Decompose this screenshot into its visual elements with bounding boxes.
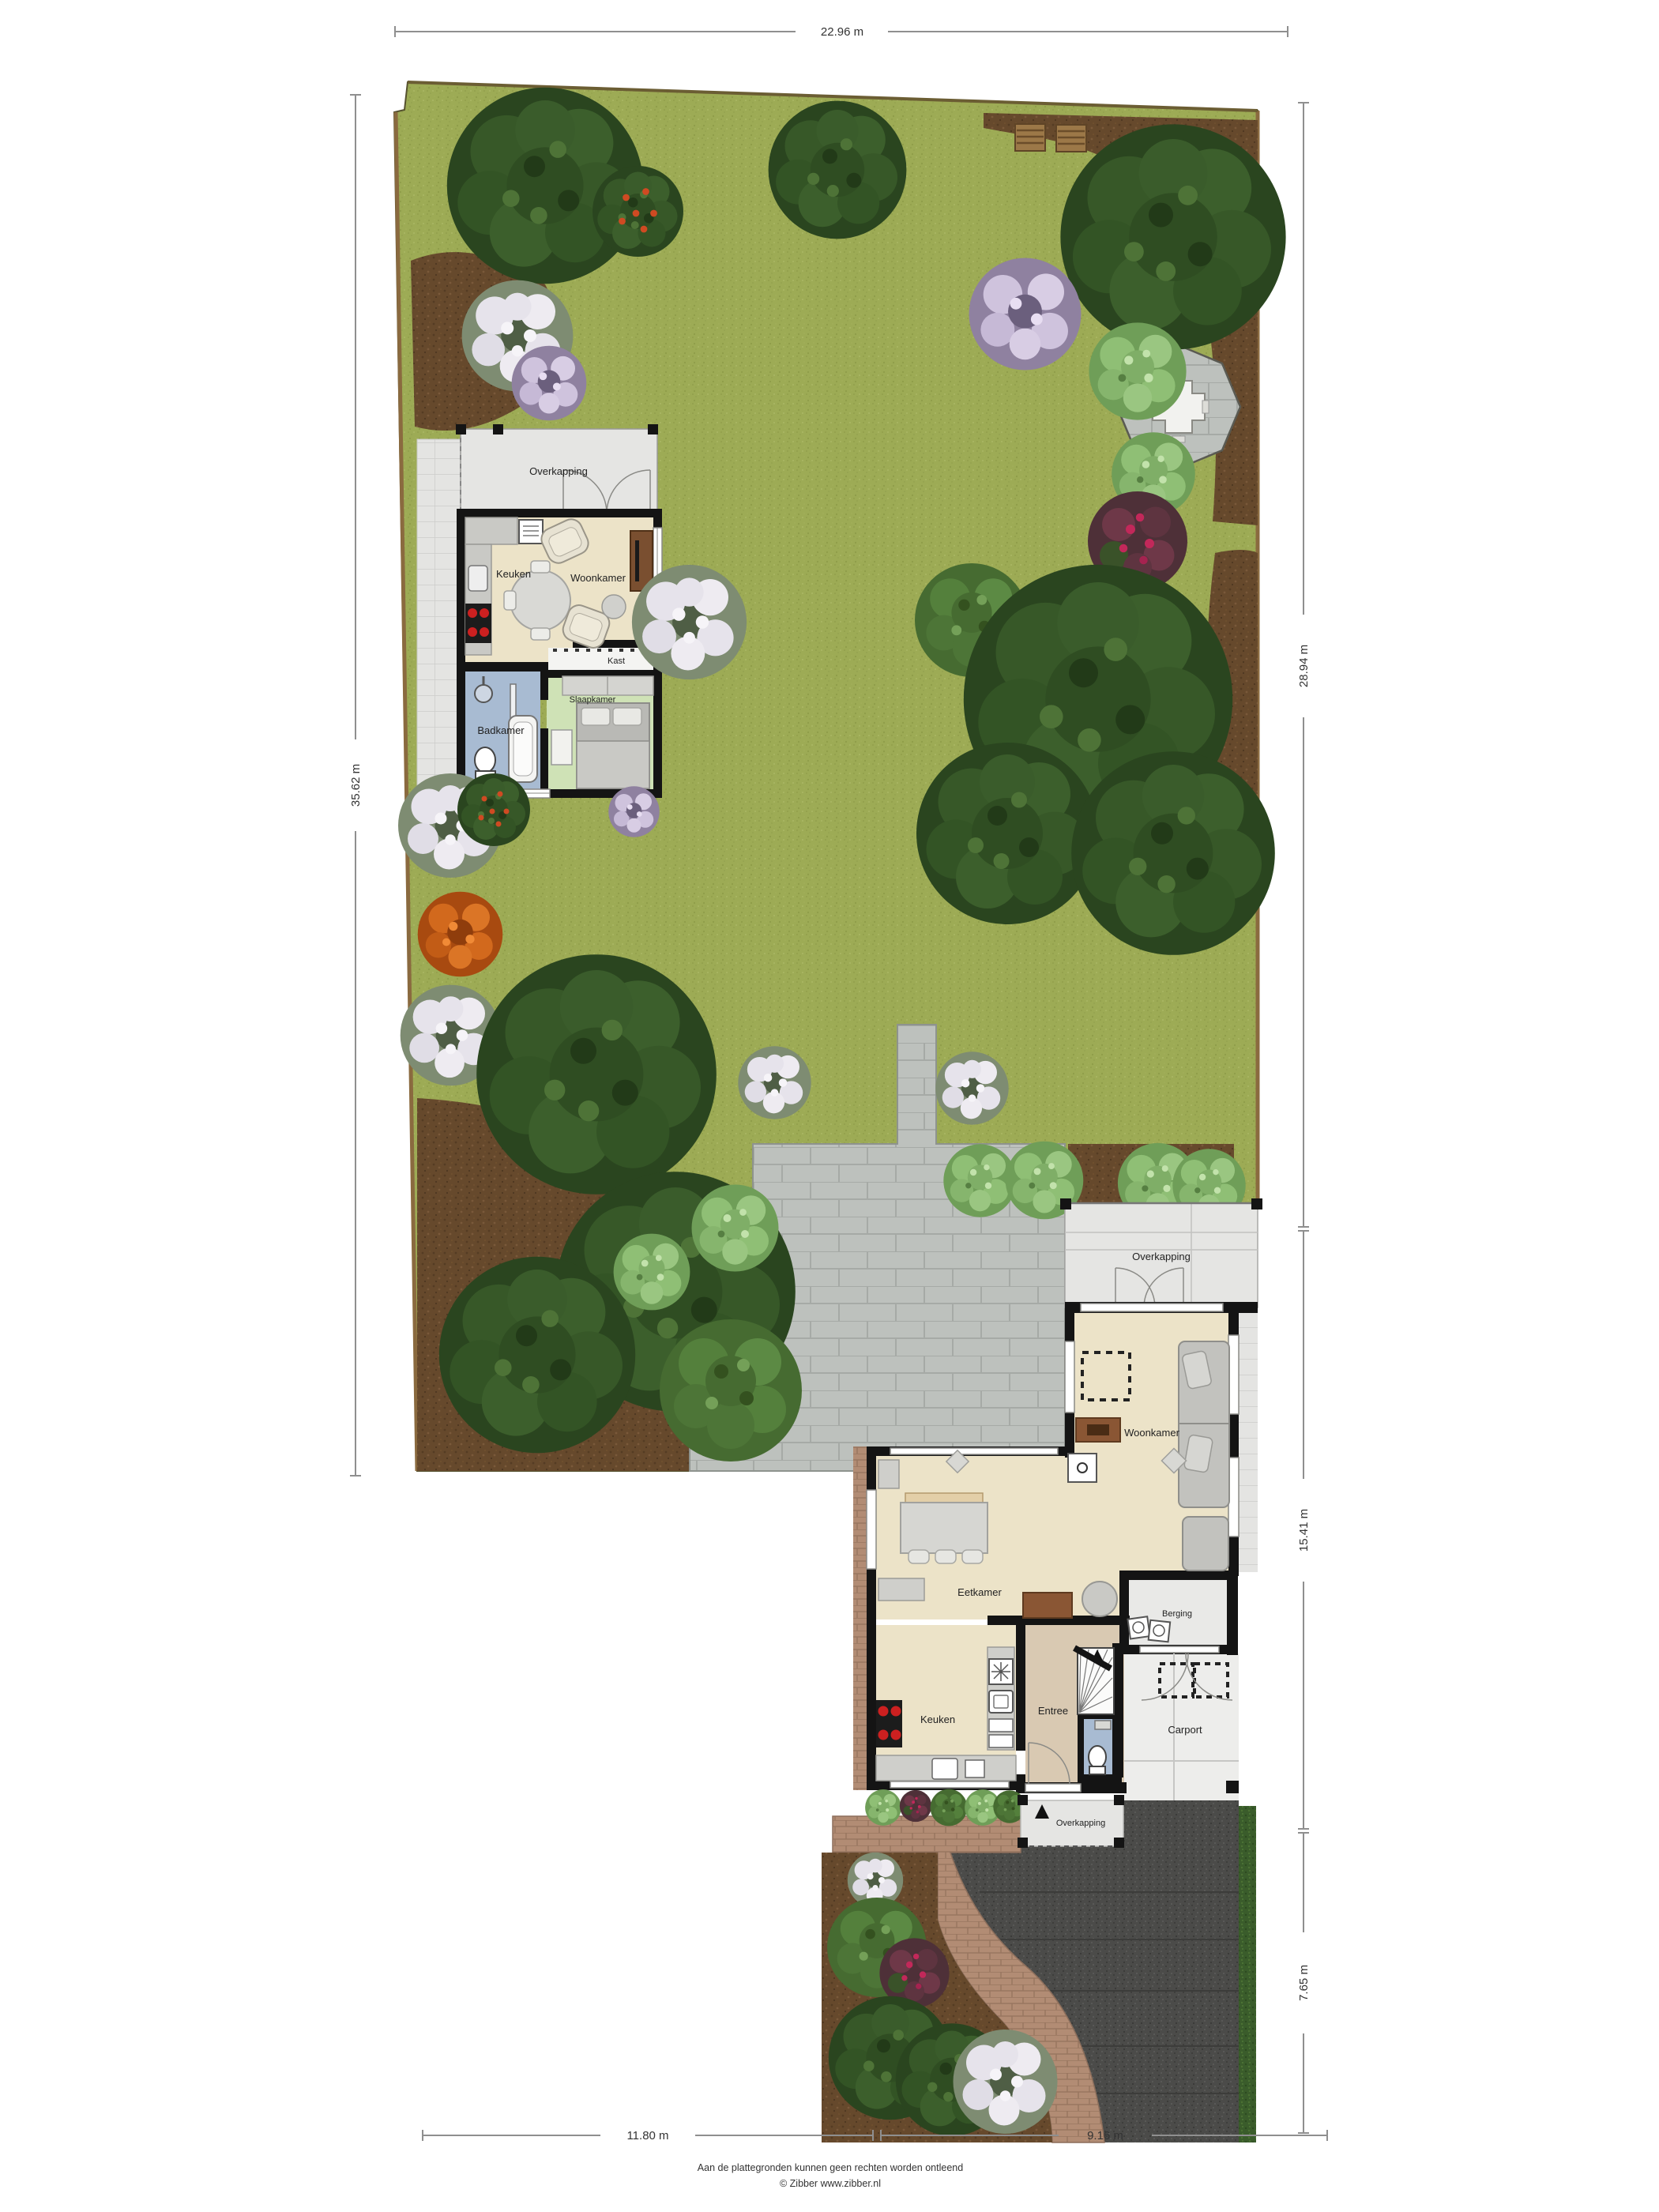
stove-icon [465, 604, 491, 643]
bush [931, 1789, 968, 1826]
stove-icon [876, 1700, 902, 1747]
house-eetkamer-label: Eetkamer [957, 1586, 1002, 1598]
site-floorplan: Overkapping Keuken Woonkamer Kast Badkam… [0, 0, 1659, 2212]
blossom-bush [738, 1046, 811, 1119]
pouf [1082, 1582, 1117, 1616]
sideboard [1023, 1593, 1072, 1618]
tree [1060, 124, 1285, 349]
berry-bush [592, 166, 683, 257]
annex-woonkamer-label: Woonkamer [570, 572, 626, 584]
bush [614, 1234, 690, 1311]
house-overkapping-front-label: Overkapping [1056, 1819, 1105, 1828]
shower-icon [475, 685, 492, 702]
blossom-bush [954, 2030, 1058, 2134]
annex-slaapkamer-label: Slaapkamer [570, 695, 616, 705]
blossom-bush [608, 786, 660, 837]
wc [1084, 1719, 1112, 1774]
footer-disclaimer: Aan de plattegronden kunnen geen rechten… [698, 2162, 963, 2173]
annex-building: Overkapping Keuken Woonkamer Kast Badkam… [456, 424, 662, 798]
tree [660, 1319, 802, 1461]
oven-icon [519, 520, 543, 544]
bush [865, 1789, 901, 1826]
house-keuken-label: Keuken [920, 1714, 955, 1725]
berry-bush [457, 773, 530, 846]
dimension-top-label: 22.96 m [821, 25, 863, 39]
tree [1071, 751, 1275, 955]
bush [1089, 322, 1186, 419]
house-woonkamer-label: Woonkamer [1124, 1427, 1180, 1439]
dimension-bottom-left-label: 11.80 m [626, 2129, 668, 2142]
footer: Aan de plattegronden kunnen geen rechten… [698, 2162, 963, 2189]
tree [476, 954, 717, 1194]
annex-keuken-label: Keuken [496, 568, 531, 580]
nightstand [551, 730, 572, 765]
annex-overkapping-label: Overkapping [529, 465, 588, 477]
sink-icon [468, 566, 487, 591]
house-carport-label: Carport [1168, 1724, 1202, 1736]
dimension-right-middle-label: 15.41 m [1297, 1509, 1311, 1552]
dimension-left-label: 35.62 m [349, 764, 363, 807]
dimension-right-lower-label: 7.65 m [1297, 1965, 1311, 2001]
dimension-top: 22.96 m [395, 25, 1288, 39]
lamp-box [1068, 1454, 1097, 1482]
tree [439, 1257, 635, 1453]
dimension-right-upper-label: 28.94 m [1297, 645, 1311, 687]
dimension-right-upper: 28.94 m [1297, 103, 1311, 1227]
garden-bench [1056, 125, 1086, 152]
hedge [1239, 1806, 1256, 2142]
dimension-left: 35.62 m [349, 95, 363, 1476]
blossom-bush [512, 346, 587, 421]
tree [916, 743, 1098, 924]
blossom-bush [935, 1051, 1008, 1124]
tree [769, 101, 907, 239]
dimension-right-middle: 15.41 m [1297, 1231, 1311, 1829]
chaise [1183, 1517, 1228, 1571]
house-canopy-front: Overkapping [1018, 1795, 1124, 1848]
bush [692, 1185, 779, 1272]
sink-icon [932, 1759, 957, 1779]
front-yard: Overkapping [822, 1789, 1256, 2142]
dimension-bottom-right-label: 9.16 m [1087, 2129, 1123, 2142]
orange-bush [418, 892, 503, 977]
house-berging-label: Berging [1162, 1609, 1192, 1619]
annex-kast-label: Kast [608, 656, 625, 666]
staircase [1074, 1648, 1114, 1714]
dining-table [901, 1503, 987, 1553]
footer-credit: © Zibber www.zibber.nl [780, 2178, 881, 2189]
blossom-bush [969, 258, 1082, 371]
annex-badkamer-label: Badkamer [477, 724, 525, 736]
flower-bush [900, 1790, 931, 1822]
garden-bench [1015, 124, 1045, 151]
toilet-icon [1089, 1746, 1106, 1768]
tile-path-house-side [1239, 1311, 1258, 1572]
dimension-right-lower: 7.65 m [1297, 1833, 1311, 2133]
oven-icon [989, 1691, 1013, 1713]
tile-path-annex [417, 439, 462, 795]
blossom-bush [632, 565, 747, 679]
house-entree-label: Entree [1038, 1705, 1068, 1717]
house-overkapping-label: Overkapping [1132, 1251, 1191, 1262]
brick-wall-strip [853, 1446, 867, 1790]
dimension-bottom-left: 11.80 m [423, 2129, 873, 2142]
extractor-fan-icon [989, 1659, 1013, 1684]
